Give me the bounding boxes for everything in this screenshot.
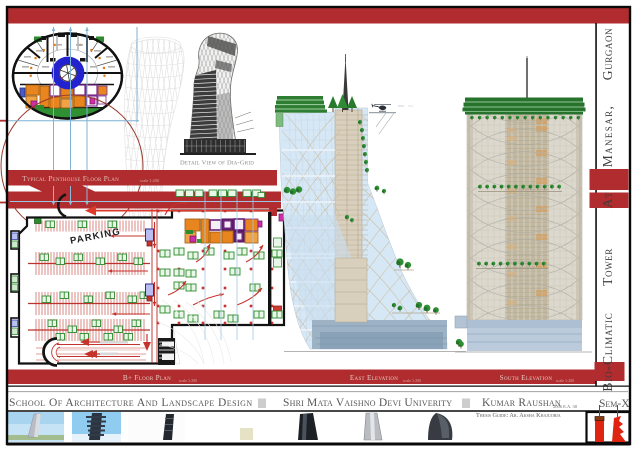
- svg-text:scale 1:200: scale 1:200: [140, 178, 159, 183]
- svg-text:scale 1:200: scale 1:200: [403, 378, 421, 383]
- svg-text:Tower: Tower: [600, 248, 615, 286]
- svg-text:Kumar Raushan: Kumar Raushan: [482, 397, 561, 409]
- svg-text:B+ Floor Plan: B+ Floor Plan: [123, 374, 171, 382]
- svg-text:Shri Mata Vaishno Devi Univeri: Shri Mata Vaishno Devi Univerity: [283, 397, 452, 409]
- svg-text:At: At: [600, 192, 615, 208]
- svg-text:Thesis Guide: Ar. Aksha Khajuo: Thesis Guide: Ar. Aksha Khajuoria: [476, 412, 561, 419]
- svg-text:Manesar,: Manesar,: [600, 105, 615, 168]
- svg-text:South Elevation: South Elevation: [500, 374, 553, 382]
- svg-text:||||: ||||: [258, 398, 266, 409]
- svg-text:School Of Architecture And Lan: School Of Architecture And Landscape Des…: [9, 397, 253, 409]
- svg-text:Sem-X: Sem-X: [599, 398, 630, 410]
- svg-text:Gurgaon: Gurgaon: [600, 28, 615, 80]
- svg-text:Detail View of Dia-Grid: Detail View of Dia-Grid: [180, 160, 254, 167]
- svg-text:Typical Penthouse Floor Plan: Typical Penthouse Floor Plan: [22, 174, 119, 183]
- svg-text:East Elevation: East Elevation: [350, 374, 398, 382]
- svg-text:scale 1:200: scale 1:200: [556, 378, 574, 383]
- svg-text:scale 1:200: scale 1:200: [179, 378, 197, 383]
- svg-text:Bio-Climatic: Bio-Climatic: [600, 312, 615, 391]
- svg-text:||||: ||||: [462, 398, 470, 409]
- svg-text:2006 E.A. 30: 2006 E.A. 30: [553, 404, 578, 409]
